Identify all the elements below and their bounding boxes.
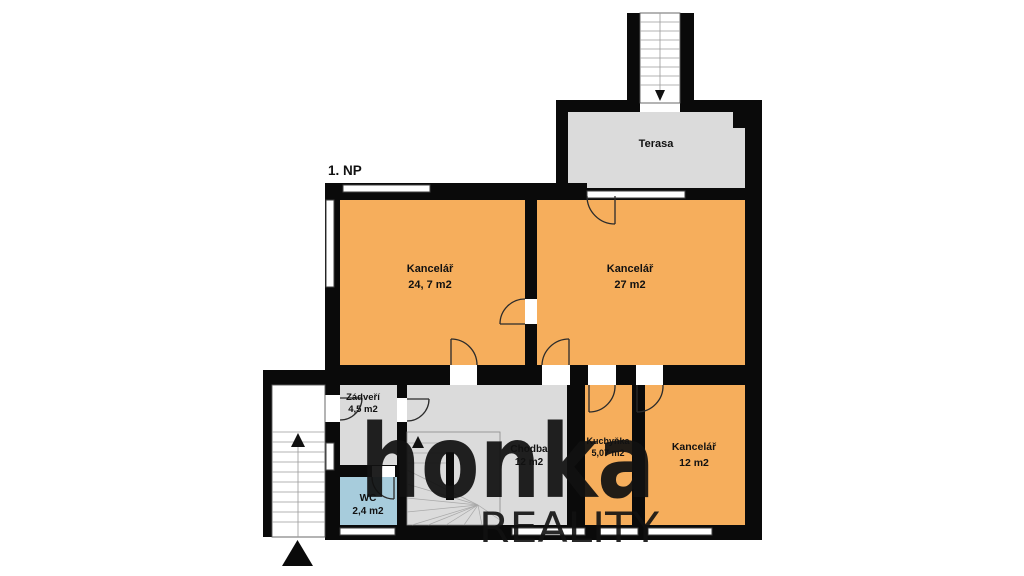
wall-segment [263, 370, 272, 537]
opening [542, 365, 570, 385]
terrace-stairs [640, 13, 680, 103]
opening [636, 365, 663, 385]
entrance-arrow-icon [282, 540, 313, 566]
watermark-subbrand: REALITY [479, 503, 659, 552]
stair-flight [272, 385, 325, 537]
label-zadveri-name: Zádveří [346, 392, 380, 403]
label-office2-area: 27 m2 [614, 279, 645, 291]
window [326, 200, 334, 287]
window-terrace-door [587, 191, 685, 198]
wall-segment [733, 112, 745, 128]
floorplan-canvas: 1. NP Terasa Kancelář 24, 7 m2 Kancelář … [0, 0, 1024, 576]
label-office1-area: 24, 7 m2 [408, 279, 451, 291]
window [326, 443, 334, 470]
opening [525, 299, 537, 324]
label-office3-name: Kancelář [672, 441, 717, 453]
wall-segment [627, 13, 640, 105]
window [340, 528, 395, 535]
label-office3-area: 12 m2 [679, 457, 709, 469]
opening [450, 365, 477, 385]
room-terasa [568, 112, 745, 192]
wall-segment [745, 100, 762, 540]
wall-segment [556, 100, 568, 200]
label-office2-name: Kancelář [607, 263, 654, 275]
opening [588, 365, 616, 385]
label-office1-name: Kancelář [407, 263, 454, 275]
floorplan-svg: 1. NP Terasa Kancelář 24, 7 m2 Kancelář … [0, 0, 1024, 576]
opening [325, 395, 340, 422]
wall-segment [263, 370, 340, 385]
floor-label: 1. NP [328, 163, 362, 178]
window [343, 185, 430, 192]
label-terasa-name: Terasa [639, 138, 675, 150]
wall-segment [525, 200, 537, 378]
wall-segment [680, 13, 694, 105]
entrance-stairs [272, 385, 325, 566]
room-office3 [645, 385, 745, 525]
